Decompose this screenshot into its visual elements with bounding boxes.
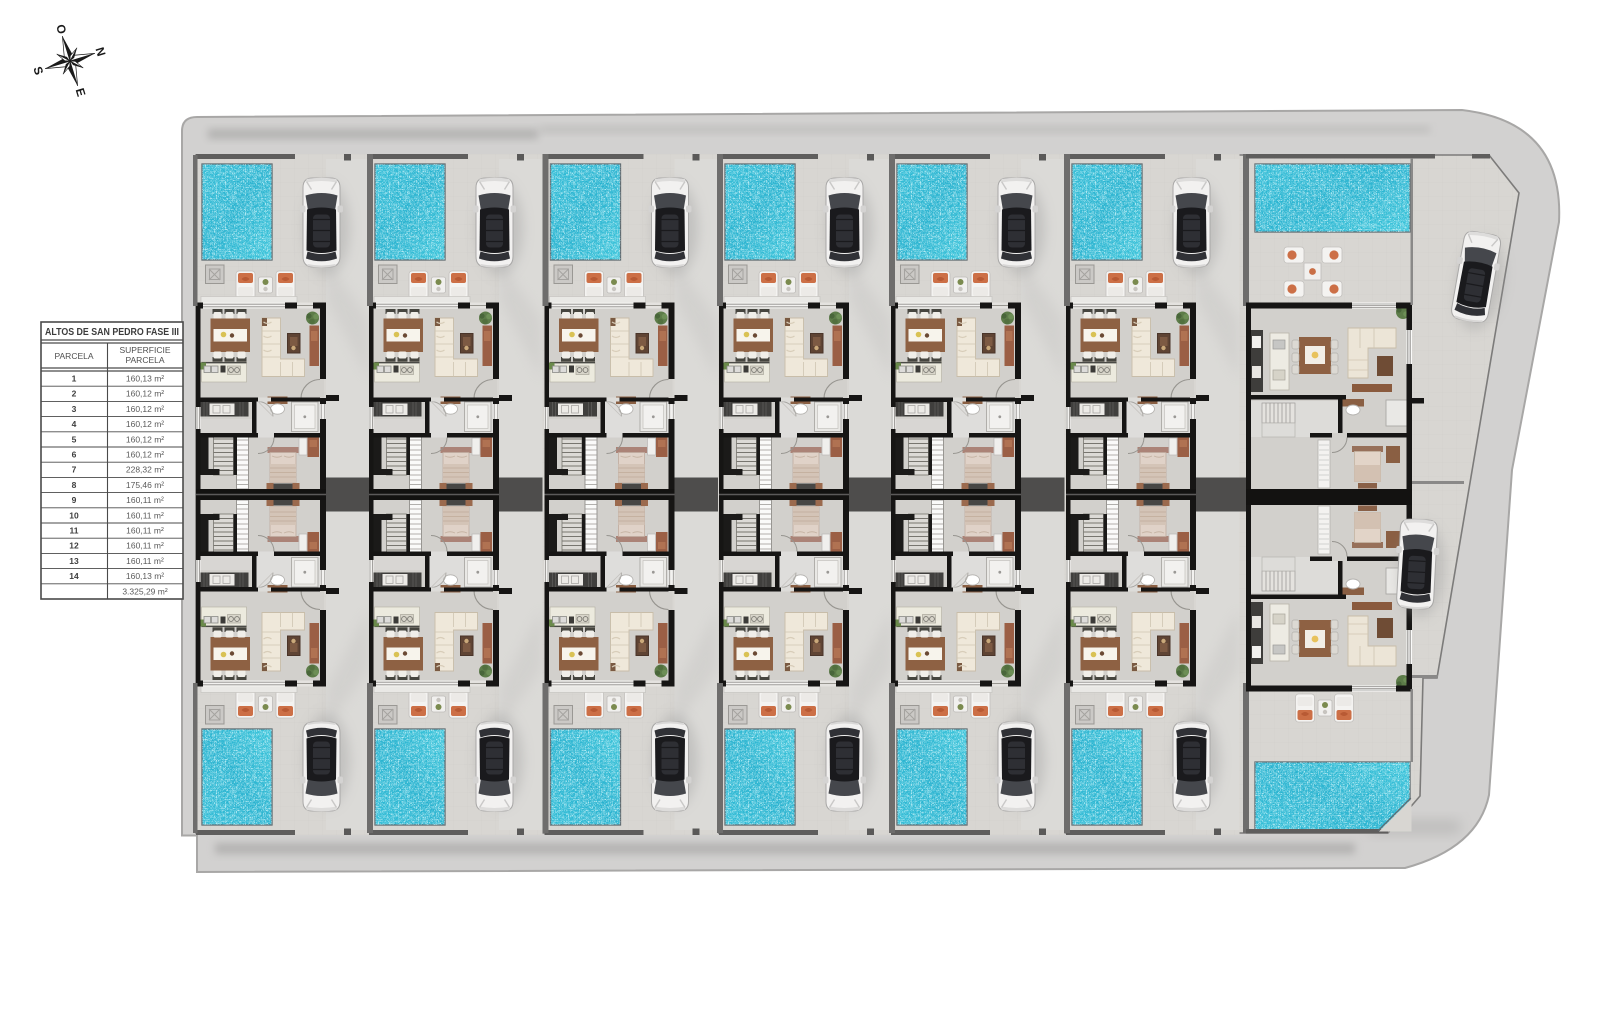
svg-text:6: 6: [72, 450, 77, 460]
svg-text:2: 2: [72, 389, 77, 399]
svg-text:228,32 m²: 228,32 m²: [126, 465, 164, 475]
svg-text:PARCELA: PARCELA: [54, 351, 93, 361]
svg-text:ALTOS DE SAN PEDRO FASE III: ALTOS DE SAN PEDRO FASE III: [45, 327, 179, 338]
svg-text:11: 11: [70, 526, 79, 536]
svg-text:14: 14: [69, 571, 79, 581]
svg-text:1: 1: [72, 374, 77, 384]
svg-text:160,12 m²: 160,12 m²: [126, 450, 164, 460]
svg-text:13: 13: [69, 556, 79, 566]
svg-text:160,11 m²: 160,11 m²: [126, 510, 164, 520]
svg-text:PARCELA: PARCELA: [125, 355, 164, 365]
svg-text:160,12 m²: 160,12 m²: [126, 419, 164, 429]
svg-text:175,46 m²: 175,46 m²: [126, 480, 164, 490]
svg-text:SUPERFICIE: SUPERFICIE: [119, 345, 170, 355]
svg-text:4: 4: [72, 419, 77, 429]
svg-text:160,11 m²: 160,11 m²: [126, 541, 164, 551]
svg-text:3.325,29 m²: 3.325,29 m²: [122, 586, 168, 596]
svg-text:7: 7: [72, 465, 77, 475]
svg-text:12: 12: [69, 541, 79, 551]
svg-text:10: 10: [69, 510, 79, 520]
svg-text:160,11 m²: 160,11 m²: [126, 526, 164, 536]
svg-text:3: 3: [72, 404, 77, 414]
svg-text:160,12 m²: 160,12 m²: [126, 434, 164, 444]
svg-text:160,12 m²: 160,12 m²: [126, 389, 164, 399]
svg-text:160,11 m²: 160,11 m²: [126, 556, 164, 566]
svg-text:8: 8: [72, 480, 77, 490]
svg-text:5: 5: [72, 434, 77, 444]
svg-text:9: 9: [72, 495, 77, 505]
svg-text:160,13 m²: 160,13 m²: [126, 571, 164, 581]
svg-text:160,11 m²: 160,11 m²: [126, 495, 164, 505]
svg-text:160,13 m²: 160,13 m²: [126, 374, 164, 384]
svg-text:160,12 m²: 160,12 m²: [126, 404, 164, 414]
